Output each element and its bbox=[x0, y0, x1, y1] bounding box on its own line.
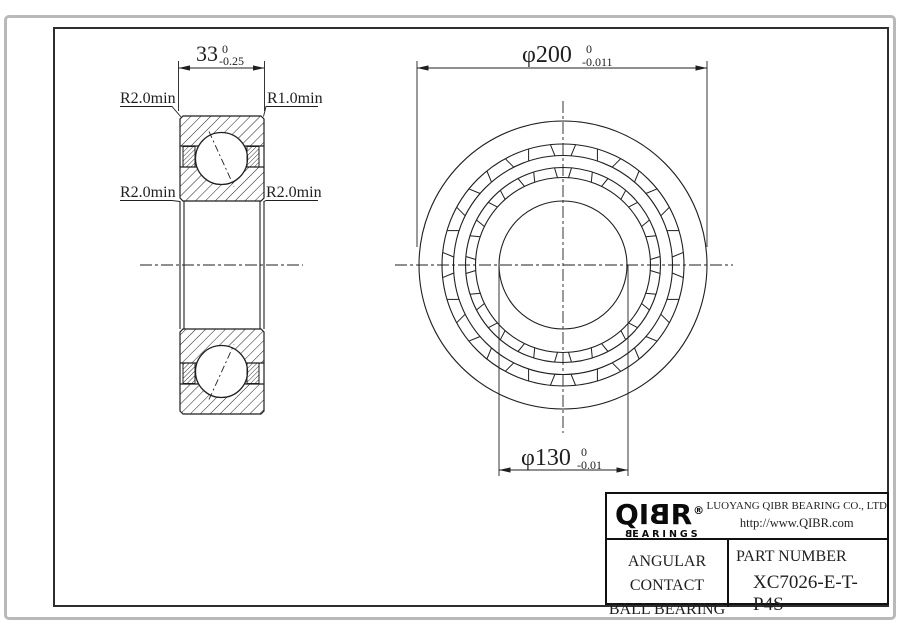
cage-pocket-edge bbox=[642, 304, 650, 311]
cage-pocket-edge bbox=[571, 145, 576, 156]
width-dim-tol-lower: -0.25 bbox=[219, 54, 244, 68]
cage-pocket-edge bbox=[602, 344, 609, 352]
cage-pocket-edge bbox=[466, 257, 476, 260]
drawing-sheet: 33 0 -0.25 R2.0min R1.0min R2.0min R2.0m… bbox=[0, 0, 900, 636]
arrowhead bbox=[617, 467, 629, 472]
width-dimension: 33 0 -0.25 bbox=[179, 41, 265, 111]
cage-section bbox=[247, 363, 259, 384]
cage-pocket-edge bbox=[477, 220, 485, 227]
part-number-label: PART NUMBER bbox=[736, 548, 887, 566]
cage-pocket-edge bbox=[505, 363, 514, 372]
width-dim-value: 33 bbox=[196, 41, 218, 66]
cage-pocket-edge bbox=[635, 171, 640, 182]
part-number-value: XC7026-E-T-P4S bbox=[753, 572, 887, 616]
arrowhead bbox=[179, 65, 191, 70]
bore-dim-tol-upper: 0 bbox=[581, 445, 587, 459]
cage-pocket-edge bbox=[646, 189, 657, 194]
cage-pocket-edge bbox=[500, 190, 505, 199]
cage-pocket-edge bbox=[555, 168, 558, 178]
bore-dimension: φ130 0 -0.01 bbox=[499, 265, 628, 476]
cage-pocket-edge bbox=[488, 323, 497, 328]
cage-pocket-edge bbox=[534, 348, 535, 358]
cage-pocket-edge bbox=[469, 337, 480, 342]
radius-label-top-left: R2.0min bbox=[120, 90, 176, 107]
cage-pocket-edge bbox=[646, 236, 656, 237]
cage-section bbox=[183, 147, 195, 168]
registered-mark: ® bbox=[693, 504, 704, 517]
cage-pocket-edge bbox=[635, 348, 640, 359]
cage-pocket-edge bbox=[457, 207, 466, 216]
product-type-cell: ANGULAR CONTACT BALL BEARING bbox=[607, 540, 729, 607]
cage-pocket-edge bbox=[487, 348, 492, 359]
cage-pocket-edge bbox=[672, 273, 683, 278]
arrowhead bbox=[253, 65, 265, 70]
cage-pocket-edge bbox=[500, 331, 505, 340]
bore-dim-text: φ130 bbox=[521, 445, 571, 471]
cage-pocket-edge bbox=[505, 159, 514, 168]
cage-pocket-edge bbox=[569, 352, 572, 362]
qibr-logo-wordmark: QIBR® bbox=[615, 497, 707, 529]
cage-pocket-edge bbox=[621, 190, 626, 199]
cage-pocket-edge bbox=[550, 374, 555, 385]
cage-pocket-edge bbox=[488, 202, 497, 207]
cage-pocket-edge bbox=[550, 145, 555, 156]
cage-pocket-edge bbox=[650, 257, 660, 260]
title-block: QIBR® BEARINGS LUOYANG QIBR BEARING CO.,… bbox=[605, 492, 889, 605]
cage-pocket-edge bbox=[555, 352, 558, 362]
cage-pocket-edge bbox=[642, 220, 650, 227]
title-block-bottom-row: ANGULAR CONTACT BALL BEARING PART NUMBER… bbox=[607, 540, 887, 607]
cage-pocket-edge bbox=[469, 189, 480, 194]
od-dim-text: φ200 bbox=[522, 42, 572, 68]
cage-pocket-edge bbox=[591, 172, 592, 182]
arrowhead bbox=[417, 65, 429, 70]
section-top-half bbox=[180, 116, 264, 201]
cage-pocket-edge bbox=[477, 304, 485, 311]
cage-pocket-edge bbox=[646, 337, 657, 342]
part-number-cell: PART NUMBER XC7026-E-T-P4S bbox=[729, 540, 887, 607]
company-website: http://www.QIBR.com bbox=[707, 516, 888, 531]
product-type-line2: BALL BEARING bbox=[607, 598, 727, 622]
cage-pocket-edge bbox=[443, 273, 454, 278]
cage-pocket-edge bbox=[487, 171, 492, 182]
od-dim-tol-lower: -0.011 bbox=[582, 55, 613, 69]
cage-pocket-edge bbox=[672, 252, 683, 257]
section-view: 33 0 -0.25 R2.0min R1.0min R2.0min R2.0m… bbox=[120, 41, 323, 414]
bore-dim-tol-lower: -0.01 bbox=[577, 458, 602, 472]
arrowhead bbox=[696, 65, 708, 70]
title-block-header-row: QIBR® BEARINGS LUOYANG QIBR BEARING CO.,… bbox=[607, 494, 887, 540]
cage-pocket-edge bbox=[621, 331, 626, 340]
cage-pocket-edge bbox=[646, 293, 656, 294]
radius-label-mid-right: R2.0min bbox=[266, 184, 322, 201]
company-cell: LUOYANG QIBR BEARING CO., LTD http://www… bbox=[707, 494, 888, 538]
radius-label-top-right: R1.0min bbox=[267, 90, 323, 107]
cage-section bbox=[183, 363, 195, 384]
ball bbox=[196, 133, 248, 185]
product-type-line1: ANGULAR CONTACT bbox=[607, 550, 727, 598]
cage-pocket-edge bbox=[591, 348, 592, 358]
cage-pocket-edge bbox=[612, 159, 621, 168]
cage-pocket-edge bbox=[518, 179, 525, 187]
cage-pocket-edge bbox=[661, 207, 670, 216]
od-dim-tol-upper: 0 bbox=[586, 42, 592, 56]
cage-pocket-edge bbox=[602, 179, 609, 187]
cage-pocket-edge bbox=[518, 344, 525, 352]
company-name: LUOYANG QIBR BEARING CO., LTD bbox=[707, 500, 888, 512]
front-view: φ200 0 -0.011 φ130 0 -0.01 bbox=[395, 42, 733, 476]
arrowhead bbox=[499, 467, 511, 472]
cage-pocket-edge bbox=[650, 271, 660, 274]
cage-pocket-edge bbox=[571, 374, 576, 385]
cage-pocket-edge bbox=[457, 314, 466, 323]
cage-pocket-edge bbox=[534, 172, 535, 182]
section-bottom-half bbox=[180, 329, 264, 414]
qibr-logo: QIBR® BEARINGS bbox=[607, 494, 707, 538]
cage-pocket-edge bbox=[661, 314, 670, 323]
cage-pocket-edge bbox=[629, 202, 638, 207]
radius-label-mid-left: R2.0min bbox=[120, 184, 176, 201]
cage-pocket-edge bbox=[470, 236, 480, 237]
cage-pocket-edge bbox=[612, 363, 621, 372]
cage-section bbox=[247, 147, 259, 168]
cage-pocket-edge bbox=[443, 252, 454, 257]
cage-pocket-edge bbox=[569, 168, 572, 178]
cage-pocket-edge bbox=[629, 323, 638, 328]
cage-pocket-edge bbox=[470, 293, 480, 294]
cage-pocket-edge bbox=[466, 271, 476, 274]
